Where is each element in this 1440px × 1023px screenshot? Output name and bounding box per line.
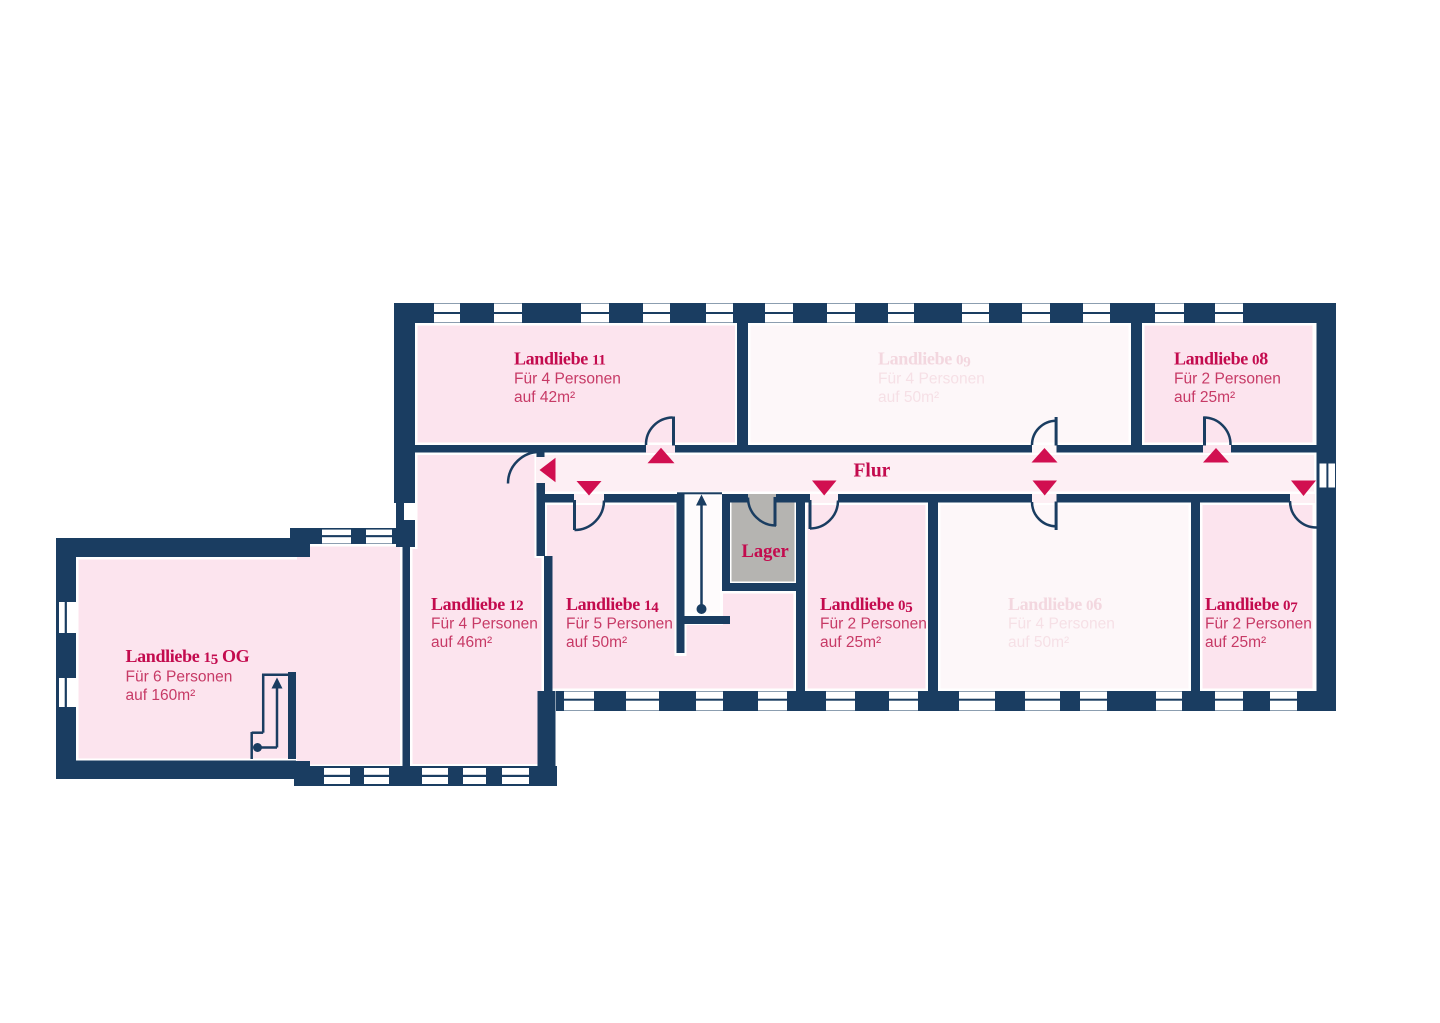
svg-text:auf 46m²: auf 46m²	[431, 634, 492, 651]
svg-text:Landliebe 15 OG: Landliebe 15 OG	[126, 646, 250, 668]
svg-text:auf 50m²: auf 50m²	[566, 634, 627, 651]
svg-text:auf 42m²: auf 42m²	[514, 389, 575, 406]
svg-text:Flur: Flur	[854, 461, 891, 482]
svg-text:Lager: Lager	[742, 542, 789, 562]
svg-text:auf 25m²: auf 25m²	[1205, 634, 1266, 651]
svg-text:Landliebe 14: Landliebe 14	[566, 594, 659, 616]
svg-text:Für 6 Personen: Für 6 Personen	[126, 669, 233, 686]
svg-text:auf 25m²: auf 25m²	[820, 634, 881, 651]
svg-text:Landliebe 07: Landliebe 07	[1205, 594, 1298, 616]
svg-text:Für 2 Personen: Für 2 Personen	[1174, 371, 1281, 388]
svg-text:Für 2 Personen: Für 2 Personen	[1205, 616, 1312, 633]
svg-text:Für 4 Personen: Für 4 Personen	[878, 371, 985, 388]
svg-text:auf 25m²: auf 25m²	[1174, 389, 1235, 406]
svg-text:Landliebe 05: Landliebe 05	[820, 594, 912, 616]
svg-text:auf 160m²: auf 160m²	[126, 687, 196, 704]
svg-text:Landliebe 11: Landliebe 11	[514, 349, 606, 369]
svg-text:Für 4 Personen: Für 4 Personen	[514, 371, 621, 388]
svg-text:auf 50m²: auf 50m²	[878, 389, 939, 406]
svg-text:Für 4 Personen: Für 4 Personen	[1008, 616, 1115, 633]
svg-text:Für 4 Personen: Für 4 Personen	[431, 616, 538, 633]
svg-text:auf 50m²: auf 50m²	[1008, 634, 1069, 651]
svg-text:Für 2 Personen: Für 2 Personen	[820, 616, 927, 633]
svg-text:Für 5 Personen: Für 5 Personen	[566, 616, 673, 633]
svg-text:Landliebe 09: Landliebe 09	[878, 349, 970, 371]
